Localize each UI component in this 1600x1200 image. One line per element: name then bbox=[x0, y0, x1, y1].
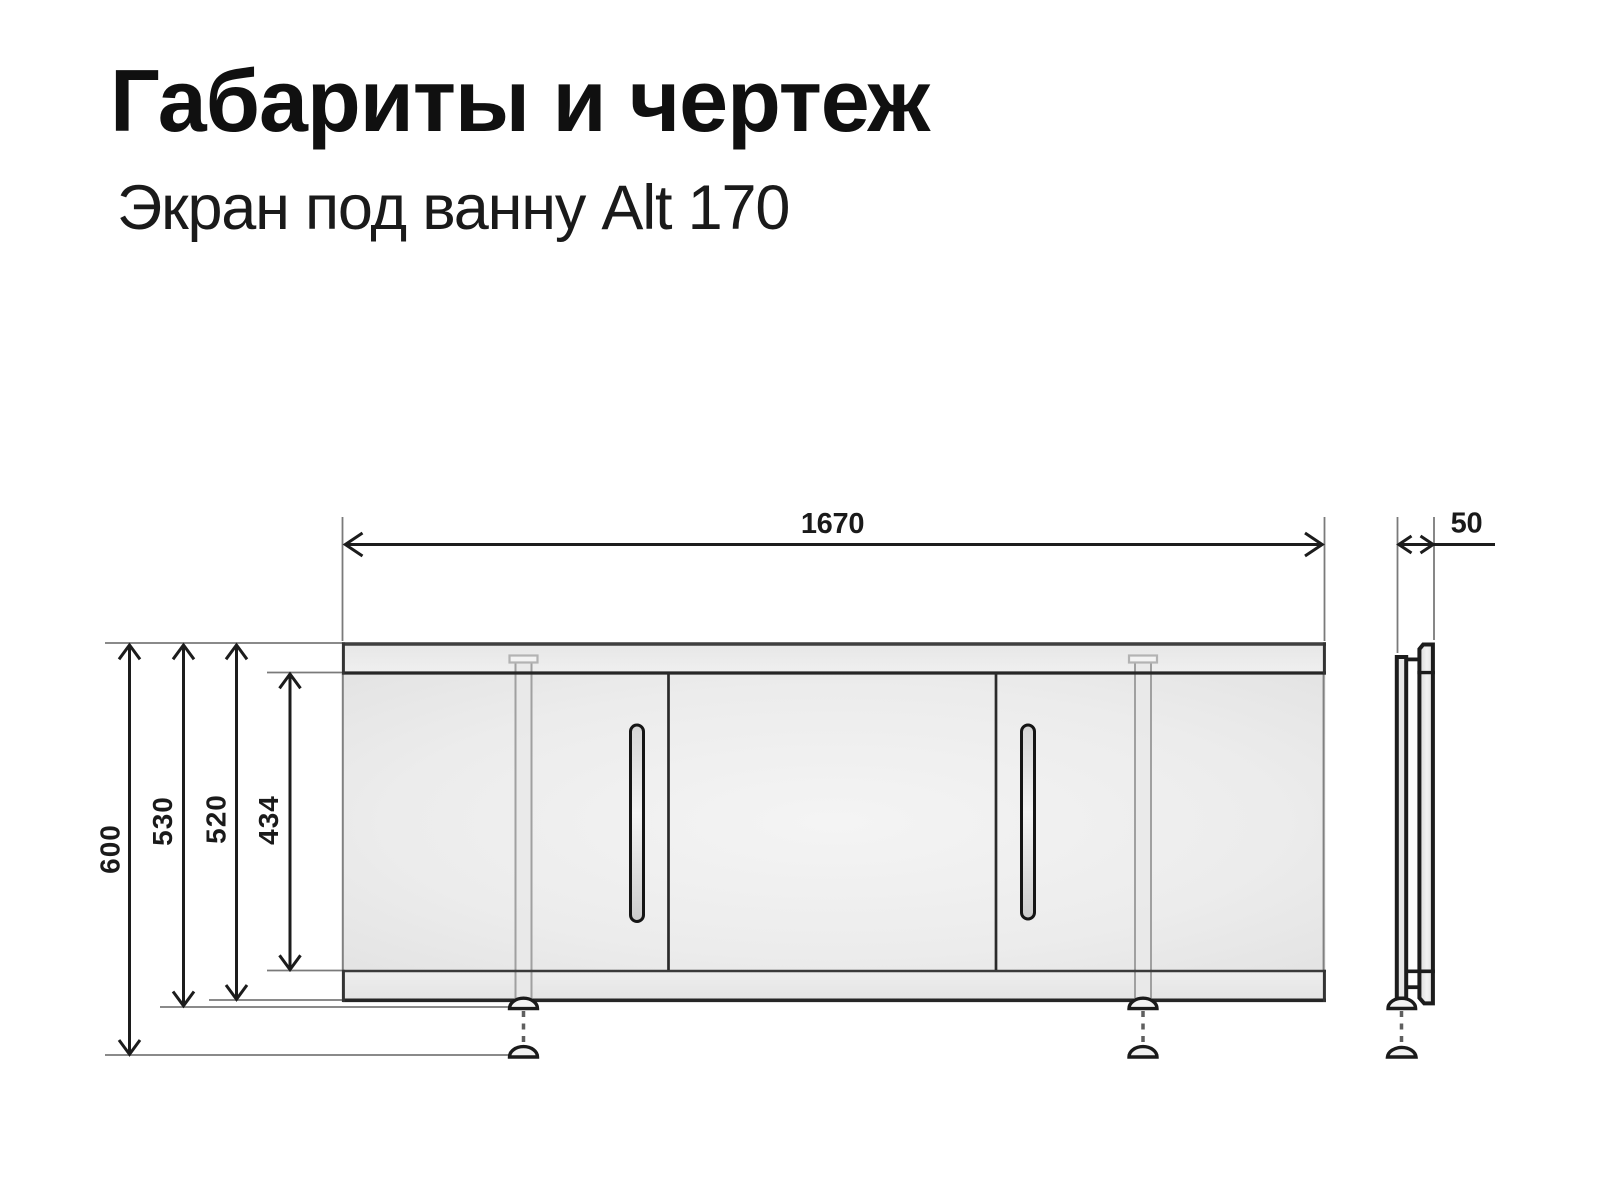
svg-text:434: 434 bbox=[253, 795, 284, 845]
svg-text:530: 530 bbox=[147, 796, 178, 846]
svg-text:600: 600 bbox=[95, 824, 126, 874]
svg-text:520: 520 bbox=[201, 794, 232, 844]
svg-text:50: 50 bbox=[1451, 508, 1483, 540]
svg-text:1670: 1670 bbox=[801, 508, 864, 540]
